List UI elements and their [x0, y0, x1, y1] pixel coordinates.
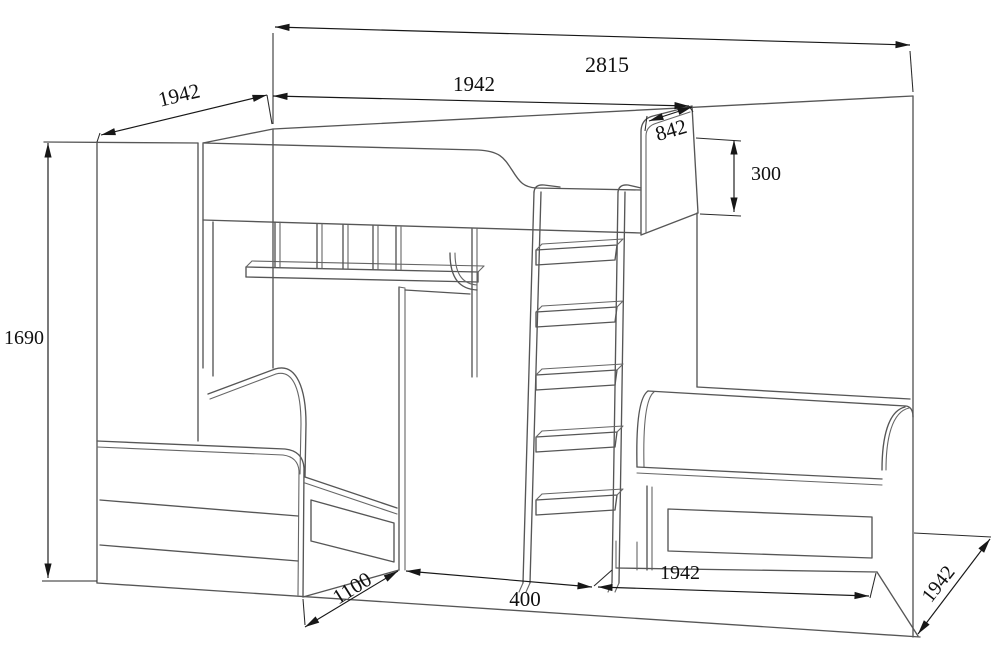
- middle-support-panel: [450, 229, 477, 377]
- dim-label-2815: 2815: [585, 52, 629, 77]
- ladder: [519, 185, 641, 592]
- dim-label-300: 300: [751, 163, 781, 185]
- bunk-bed-dimension-drawing: 2815 1942 1942 842 300 1690 1100 400: [0, 0, 997, 660]
- dim-label-1942-bottom: 1942: [660, 562, 700, 584]
- dimension-left-depth: 1942: [97, 78, 272, 142]
- right-lower-bed: [616, 391, 918, 636]
- dim-label-1942-top: 1942: [453, 72, 495, 96]
- loft-bed-front-rail: [203, 143, 641, 376]
- dimension-headboard-height: 300: [696, 138, 781, 216]
- ladder-rung: [536, 364, 623, 390]
- front-lower-bed: [97, 287, 470, 597]
- dimension-right-depth: 1942: [914, 533, 991, 634]
- ladder-rung: [536, 426, 623, 452]
- dim-label-1942-right: 1942: [918, 562, 960, 607]
- dim-label-842: 842: [653, 114, 690, 146]
- dimension-top-bed-length: 1942: [273, 72, 693, 112]
- dim-label-400: 400: [509, 587, 541, 611]
- ladder-rung: [536, 239, 623, 265]
- ladder-rung: [536, 301, 623, 327]
- ladder-rung: [536, 489, 623, 515]
- wall-shelf-unit: [246, 222, 484, 282]
- dim-label-1942-left: 1942: [156, 78, 202, 111]
- drawing-canvas: 2815 1942 1942 842 300 1690 1100 400: [0, 0, 997, 660]
- dimension-headboard-width: 842: [645, 107, 692, 146]
- dim-label-1690: 1690: [4, 327, 44, 349]
- dimension-lower-bed-length: 1942: [598, 562, 876, 598]
- dim-label-1100: 1100: [328, 567, 376, 609]
- dimension-total-width: 2815: [273, 27, 913, 124]
- left-wardrobe-panel: [44, 129, 273, 583]
- dimension-total-height: 1690: [4, 143, 97, 581]
